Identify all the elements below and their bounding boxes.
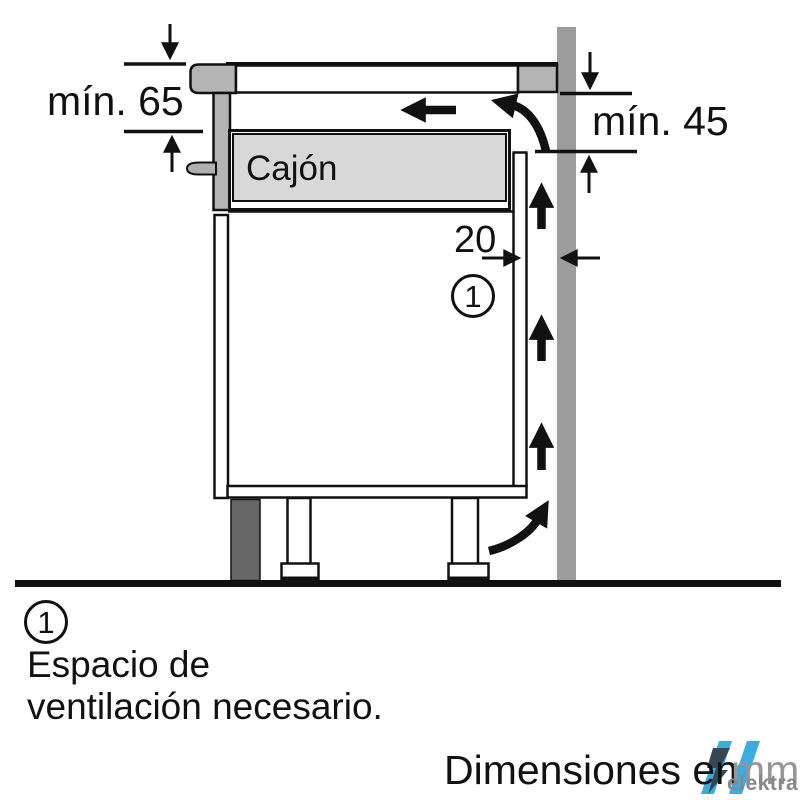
installation-diagram: 1 1 mín. 65 mín. 45 20 Cajón Espacio de … xyxy=(0,0,800,800)
legend-callout-number: 1 xyxy=(37,605,54,640)
airflow-arrow-bottom-curve-icon xyxy=(489,519,538,551)
airflow-arrow-top-curve-icon xyxy=(512,105,546,151)
legend-text-line1: Espacio de xyxy=(27,646,210,683)
legend-text-line2: ventilación necesario. xyxy=(27,688,383,725)
cabinet-leg-rear xyxy=(449,498,489,582)
front-rail xyxy=(214,93,231,210)
dimension-label-min65: mín. 65 xyxy=(47,81,184,122)
legend-callout-marker: 1 xyxy=(26,602,67,643)
floor-line xyxy=(15,580,781,587)
drawer-label: Cajón xyxy=(246,151,337,186)
plinth-panel xyxy=(231,500,260,581)
callout-1-marker: 1 xyxy=(453,276,494,317)
watermark-text: elektra xyxy=(727,773,798,794)
dimension-label-min45: mín. 45 xyxy=(592,101,729,142)
callout-1-number: 1 xyxy=(464,279,481,314)
dimension-label-20: 20 xyxy=(454,221,496,259)
cabinet-bottom-panel xyxy=(228,486,527,498)
worktop-right-section xyxy=(518,66,557,93)
drawer-handle-icon xyxy=(187,163,216,175)
wall-section xyxy=(557,27,576,581)
cabinet-right-panel xyxy=(513,153,528,488)
worktop-left-section xyxy=(191,65,237,94)
hob-body xyxy=(236,66,518,93)
cabinet-left-panel xyxy=(215,215,229,498)
units-note-text: Dimensiones en xyxy=(444,750,738,791)
cabinet-leg-front xyxy=(282,498,319,582)
